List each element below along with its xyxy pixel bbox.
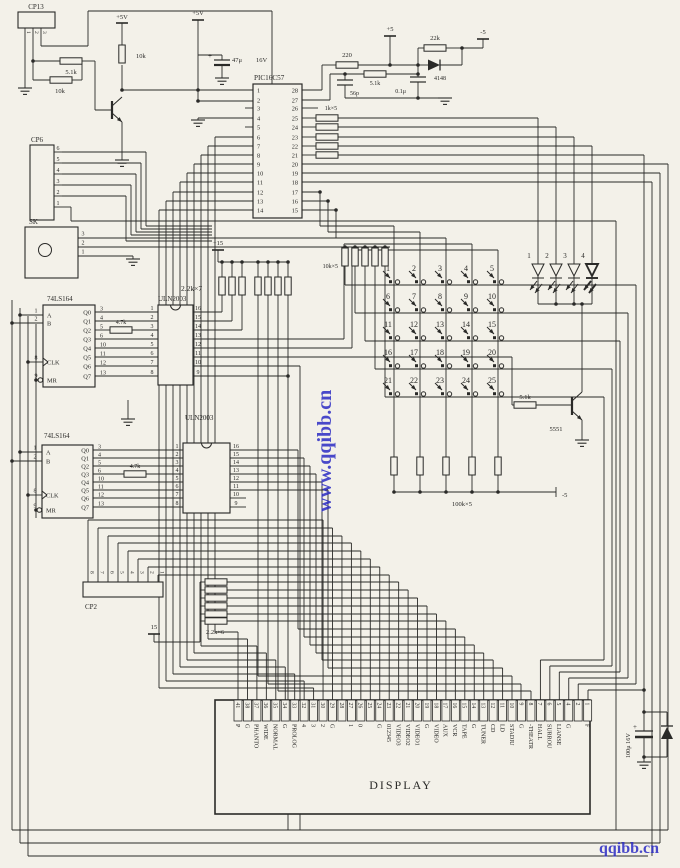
- key-contact-pad: [441, 336, 444, 339]
- cp6-pin: 3: [57, 179, 60, 185]
- key-contact-pad: [415, 308, 418, 311]
- display-pin-label: 1: [347, 724, 353, 727]
- shift2-label: 74LS164: [44, 432, 70, 440]
- junction-dot: [196, 88, 200, 92]
- resistor: [265, 277, 271, 295]
- display-pin-label: G: [376, 724, 382, 729]
- key-contact: [395, 364, 399, 368]
- r100k5-label: 100k×5: [452, 501, 472, 508]
- junction-dot: [318, 190, 322, 194]
- junction-dot: [460, 46, 464, 50]
- cp2-body: [83, 582, 163, 597]
- display-pin-number: 5: [555, 703, 561, 706]
- pin-number: 13: [195, 333, 201, 339]
- display-pin-number: 20: [413, 703, 419, 709]
- pin-number: 2: [34, 455, 37, 461]
- pin-number: 28: [292, 87, 298, 94]
- supply-5v-a: +5V: [116, 14, 128, 21]
- junction-dot: [554, 302, 558, 306]
- display-pin-label: LIANSE: [555, 724, 561, 746]
- supply-m5b: -5: [562, 492, 567, 499]
- resistor: [205, 611, 227, 617]
- resistor: [229, 277, 235, 295]
- pin-number: 20: [292, 161, 298, 168]
- key-contact: [421, 280, 425, 284]
- pin-number: 13: [233, 468, 239, 474]
- key-number: 24: [462, 376, 470, 385]
- display-pin-label: PHANTO: [253, 724, 259, 749]
- key-number: 8: [438, 292, 442, 301]
- resistor: [514, 402, 536, 408]
- resistor: [362, 248, 368, 266]
- resistor: [205, 618, 227, 624]
- pin-number: 8: [176, 501, 179, 507]
- cp2-label: CP2: [85, 603, 98, 611]
- c47-plus: +: [208, 52, 212, 60]
- display-pin-label: G: [517, 724, 523, 729]
- display-pin-label: VIDEO1: [413, 724, 419, 746]
- resistor: [316, 124, 338, 130]
- sk-pin: 3: [82, 232, 85, 238]
- pin-number: 9: [235, 501, 238, 507]
- cp2-pin: 4: [129, 571, 135, 574]
- sk-label: SK: [29, 218, 38, 226]
- display-pin-number: 15: [461, 703, 467, 709]
- key-contact-pad: [415, 364, 418, 367]
- display-pin-number: 25: [366, 703, 372, 709]
- key-number: 21: [384, 376, 392, 385]
- key-contact-pad: [441, 392, 444, 395]
- junction-dot: [343, 72, 347, 76]
- junction-dot: [26, 493, 30, 497]
- key-contact-pad: [493, 280, 496, 283]
- cp6-pin: 6: [57, 146, 60, 152]
- display-pin-number: 8: [527, 703, 533, 706]
- resistor: [352, 248, 358, 266]
- junction-dot: [392, 490, 396, 494]
- pin-number: Q0: [83, 309, 91, 316]
- display-pin-label: VCR: [451, 724, 457, 736]
- pin-number: 3: [98, 445, 101, 451]
- key-contact: [499, 364, 503, 368]
- pin-number: Q4: [81, 479, 90, 486]
- uln-body: [183, 443, 230, 513]
- key-number: 15: [488, 320, 496, 329]
- resistor: [316, 152, 338, 158]
- cp13-body: [18, 12, 55, 28]
- display-pin-label: TUNER: [480, 724, 486, 744]
- pin-number: Q1: [81, 455, 89, 462]
- junction-dot: [416, 63, 420, 67]
- sk-pin: 2: [82, 241, 85, 247]
- junction-dot: [120, 88, 124, 92]
- pin-number: 1: [151, 306, 154, 312]
- pin-number: 7: [257, 143, 260, 150]
- pin-number: 7: [151, 360, 154, 366]
- junction-dot: [642, 755, 646, 759]
- display-pin-number: 33: [291, 703, 297, 709]
- pin-number: 11: [257, 179, 263, 186]
- pin-number: MR: [47, 378, 58, 385]
- pic-title: PIC16C57: [254, 74, 285, 82]
- r1k5-label: 1k×5: [325, 106, 337, 112]
- pin-number: 16: [195, 306, 201, 312]
- key-contact-pad: [441, 280, 444, 283]
- resistor: [219, 277, 225, 295]
- schematic-page: 1234123456789101112131415161718192021222…: [0, 0, 680, 868]
- pin-number: MR: [46, 508, 57, 515]
- display-pin-label: -THEATR: [527, 724, 533, 749]
- junction-dot: [388, 63, 392, 67]
- inverter-bubble: [38, 378, 43, 383]
- pin-number: 5: [151, 342, 154, 348]
- display-pin-label: STADIU: [508, 724, 514, 746]
- pin-number: 4: [151, 333, 154, 339]
- key-number: 7: [412, 292, 416, 301]
- key-contact-pad: [389, 308, 392, 311]
- resistor: [205, 603, 227, 609]
- pin-number: 11: [233, 484, 239, 490]
- pin-number: 12: [98, 493, 104, 499]
- junction-dot: [240, 260, 244, 264]
- pin-number: 16: [233, 444, 239, 450]
- driver2-label: ULN2003: [185, 414, 214, 422]
- display-pin-number: 10: [508, 703, 514, 709]
- pin-number: 10: [195, 360, 201, 366]
- pin-number: Q3: [81, 471, 89, 478]
- key-number: 1: [386, 264, 390, 273]
- key-contact-pad: [389, 336, 392, 339]
- key-contact: [473, 364, 477, 368]
- cp13-pin: 1: [25, 31, 31, 34]
- pin-number: 23: [292, 134, 298, 141]
- pin-number: 17: [292, 189, 298, 196]
- display-pin-number: 18: [432, 703, 438, 709]
- led-number: 3: [563, 252, 567, 260]
- resistor: [316, 134, 338, 140]
- display-pin-number: 2: [574, 703, 580, 706]
- key-contact-pad: [467, 364, 470, 367]
- wire: [112, 97, 122, 106]
- cp6-pin: 1: [57, 201, 60, 207]
- display-pin-number: 4: [565, 703, 571, 706]
- resistor: [443, 457, 449, 475]
- junction-dot: [642, 688, 646, 692]
- cp2-pin: 8: [89, 571, 95, 574]
- display-pin-number: 21: [404, 703, 410, 709]
- resistor: [239, 277, 245, 295]
- display-pin-number: 35: [272, 703, 278, 709]
- cp2-pin: 3: [139, 571, 145, 574]
- pin-number: 24: [292, 124, 299, 131]
- pin-number: 5: [176, 476, 179, 482]
- key-number: 23: [436, 376, 444, 385]
- pin-number: Q6: [81, 495, 89, 502]
- key-contact-pad: [389, 392, 392, 395]
- key-number: 11: [384, 320, 392, 329]
- resistor: [50, 77, 72, 83]
- pin-number: 14: [233, 460, 239, 466]
- display-pin-number: 29: [328, 703, 334, 709]
- junction-dot: [580, 302, 584, 306]
- key-number: 4: [464, 264, 468, 273]
- pin-number: 12: [233, 476, 239, 482]
- display-pin-label: VIDEO3: [394, 724, 400, 746]
- key-contact-pad: [389, 364, 392, 367]
- key-number: 16: [384, 348, 392, 357]
- pin-number: Q7: [83, 373, 91, 380]
- pin-number: 14: [195, 324, 201, 330]
- r220-label: 220: [342, 52, 352, 59]
- cp6-label: CP6: [31, 136, 44, 144]
- pin-number: 8: [257, 152, 260, 159]
- display-pin-label: 2: [319, 724, 325, 727]
- display-pin-label: G: [470, 724, 476, 729]
- display-pin-number: 38: [243, 703, 249, 709]
- led-triangle: [586, 264, 598, 276]
- generated-text-layer: 1234123456789101112131415161718192021222…: [25, 31, 589, 750]
- pin-number: 8: [35, 356, 38, 362]
- q5551-label: 5551: [550, 426, 563, 433]
- display-pin-label: HALL: [536, 724, 542, 740]
- key-contact: [473, 392, 477, 396]
- resistor: [364, 71, 386, 77]
- junction-dot: [220, 260, 224, 264]
- pin-number: Q6: [83, 363, 91, 370]
- key-contact: [473, 308, 477, 312]
- key-number: 2: [412, 264, 416, 273]
- pin-number: 27: [292, 97, 298, 104]
- cp2-pin: 6: [109, 571, 115, 574]
- junction-dot: [26, 360, 30, 364]
- r2k2x6-label: 2.2k×6: [206, 629, 225, 636]
- key-contact: [421, 336, 425, 340]
- pin-number: Q5: [81, 487, 89, 494]
- display-pin-label: LD: [498, 724, 504, 733]
- resistor: [336, 62, 358, 68]
- key-contact: [447, 336, 451, 340]
- key-contact: [447, 392, 451, 396]
- key-number: 14: [462, 320, 470, 329]
- display-pin-number: 30: [319, 703, 325, 709]
- pin-number: 6: [257, 134, 260, 141]
- pin-number: 2: [151, 315, 154, 321]
- pin-number: 13: [100, 371, 106, 377]
- display-pin-number: 1: [583, 703, 589, 706]
- pin-number: 9: [34, 504, 37, 510]
- pin-number: 6: [98, 469, 101, 475]
- junction-dot: [496, 490, 500, 494]
- display-pin-label: G: [423, 724, 429, 729]
- junction-dot: [572, 302, 576, 306]
- pin-number: 12: [257, 189, 263, 196]
- pin-number: 2: [35, 317, 38, 323]
- display-pin-number: 34: [281, 703, 287, 709]
- shift1-label: 74LS164: [47, 295, 73, 303]
- watermark-vertical: www.qqibb.cn: [314, 390, 336, 512]
- resistor: [342, 248, 348, 266]
- display-pin-number: 32: [300, 703, 306, 709]
- pin-number: 1: [176, 444, 179, 450]
- key-contact: [395, 308, 399, 312]
- pin-number: 6: [176, 484, 179, 490]
- pin-number: 12: [100, 361, 106, 367]
- key-number: 22: [410, 376, 418, 385]
- pin-number: 1: [257, 87, 260, 94]
- resistor: [275, 277, 281, 295]
- cp6-pin: 4: [57, 168, 60, 174]
- key-contact: [499, 308, 503, 312]
- display-pin-label: VIDEO2: [404, 724, 410, 746]
- pin-number: 6: [151, 351, 154, 357]
- cp2-pin: 2: [149, 571, 155, 574]
- pin-number: 12: [195, 342, 201, 348]
- pin-number: 3: [176, 460, 179, 466]
- led-number: 1: [527, 252, 531, 260]
- supply-m5: -5: [480, 29, 485, 36]
- r5k1-a-label: 5.1k: [65, 69, 77, 76]
- key-contact-pad: [415, 280, 418, 283]
- display-pin-label: G: [281, 724, 287, 729]
- diode-4148: [428, 60, 440, 71]
- pin-number: Q7: [81, 504, 89, 511]
- display-pin-number: 27: [347, 703, 353, 709]
- r5k1-c-label: 5.1k: [519, 394, 531, 401]
- supply-p5: +5: [387, 26, 394, 33]
- supply-5v-b: +5V: [192, 10, 204, 17]
- pin-number: 13: [98, 502, 104, 508]
- key-contact-pad: [415, 392, 418, 395]
- pin-number: 15: [195, 315, 201, 321]
- pin-number: B: [46, 459, 50, 466]
- junction-dot: [10, 459, 14, 463]
- pin-number: CLK: [47, 360, 60, 367]
- key-contact: [447, 308, 451, 312]
- display-pin-number: 12: [489, 703, 495, 709]
- junction-dot: [256, 260, 260, 264]
- cp2-pin: 5: [119, 571, 125, 574]
- pin-number: 18: [292, 179, 298, 186]
- key-contact: [395, 392, 399, 396]
- key-number: 3: [438, 264, 442, 273]
- key-contact: [421, 308, 425, 312]
- key-number: 9: [464, 292, 468, 301]
- r2k2x7-label: 2.2k×7: [181, 284, 202, 293]
- led-triangle: [568, 264, 580, 276]
- led-triangle: [550, 264, 562, 276]
- led-triangle: [532, 264, 544, 276]
- junction-dot: [10, 321, 14, 325]
- led-number: 2: [545, 252, 549, 260]
- display-pin-label: SURROU: [546, 724, 552, 749]
- watermark-corner: qqibb.cn: [599, 840, 659, 857]
- pin-number: 9: [257, 161, 260, 168]
- display-pin-number: 6: [546, 703, 552, 706]
- key-contact-pad: [467, 336, 470, 339]
- key-contact: [447, 364, 451, 368]
- pin-number: 16: [292, 198, 298, 205]
- key-contact: [499, 280, 503, 284]
- supply-p15: +15: [213, 240, 223, 247]
- key-contact: [473, 280, 477, 284]
- r4k7-a-label: 4.7k: [116, 320, 127, 326]
- key-number: 17: [410, 348, 418, 357]
- junction-dot: [18, 313, 22, 317]
- cp6-pin: 5: [57, 157, 60, 163]
- key-contact-pad: [467, 308, 470, 311]
- display-pin-label: 4: [300, 724, 306, 727]
- driver1-label: ULN2003: [158, 295, 187, 303]
- cp13-pin: 3: [41, 31, 47, 34]
- resistor: [391, 457, 397, 475]
- pin-number: Q5: [83, 354, 91, 361]
- pin-number: Q2: [83, 327, 91, 334]
- display-pin-label: VIDEO: [432, 724, 438, 743]
- pin-number: 4: [98, 453, 101, 459]
- key-contact-pad: [415, 336, 418, 339]
- key-number: 12: [410, 320, 418, 329]
- resistor: [495, 457, 501, 475]
- cp2-pin: 1: [159, 571, 165, 574]
- resistor: [60, 58, 82, 64]
- supply-p15b: 15: [151, 624, 158, 631]
- resistor: [205, 595, 227, 601]
- display-pin-number: 19: [423, 703, 429, 709]
- pin-number: B: [47, 321, 51, 328]
- display-pin-number: 17: [442, 703, 448, 709]
- resistor: [205, 587, 227, 593]
- display-pin-label: NORMAL: [272, 724, 278, 750]
- key-number: 25: [488, 376, 496, 385]
- cp6-pin: 2: [57, 190, 60, 196]
- pin-number: 11: [195, 351, 201, 357]
- junction-dot: [416, 96, 420, 100]
- pin-number: 5: [257, 124, 260, 131]
- r10k5-label: 10k×5: [323, 264, 338, 270]
- r4k7-b-label: 4.7k: [130, 464, 141, 470]
- c01-label: 0.1μ: [395, 89, 406, 95]
- display-pin-number: 16: [451, 703, 457, 709]
- key-contact-pad: [493, 308, 496, 311]
- diode-bottom: [661, 727, 673, 739]
- pin-number: 13: [257, 198, 263, 205]
- resistor: [372, 248, 378, 266]
- c100-label: 100μ 16V: [625, 733, 632, 758]
- c47-voltage: 16V: [256, 57, 268, 64]
- display-pin-number: 11: [498, 703, 504, 709]
- cp13-label: CP13: [28, 3, 44, 11]
- pin-number: Q2: [81, 463, 89, 470]
- key-contact: [447, 280, 451, 284]
- key-contact-pad: [467, 280, 470, 283]
- wire: [572, 392, 582, 401]
- key-contact: [499, 336, 503, 340]
- pin-number: 8: [34, 489, 37, 495]
- display-pin-label: 3: [309, 724, 315, 727]
- r22k-label: 22k: [430, 35, 441, 42]
- pin-number: 11: [100, 352, 106, 358]
- resistor: [285, 277, 291, 295]
- display-pin-label: WIDE: [262, 724, 268, 740]
- pin-number: 1: [34, 446, 37, 452]
- display-pin-label: 0: [357, 724, 363, 727]
- key-number: 5: [490, 264, 494, 273]
- display-pin-number: 41: [234, 703, 240, 709]
- key-contact: [395, 280, 399, 284]
- pin-number: 19: [292, 170, 298, 177]
- display-pin-label: G: [565, 724, 571, 729]
- pin-number: 10: [257, 170, 263, 177]
